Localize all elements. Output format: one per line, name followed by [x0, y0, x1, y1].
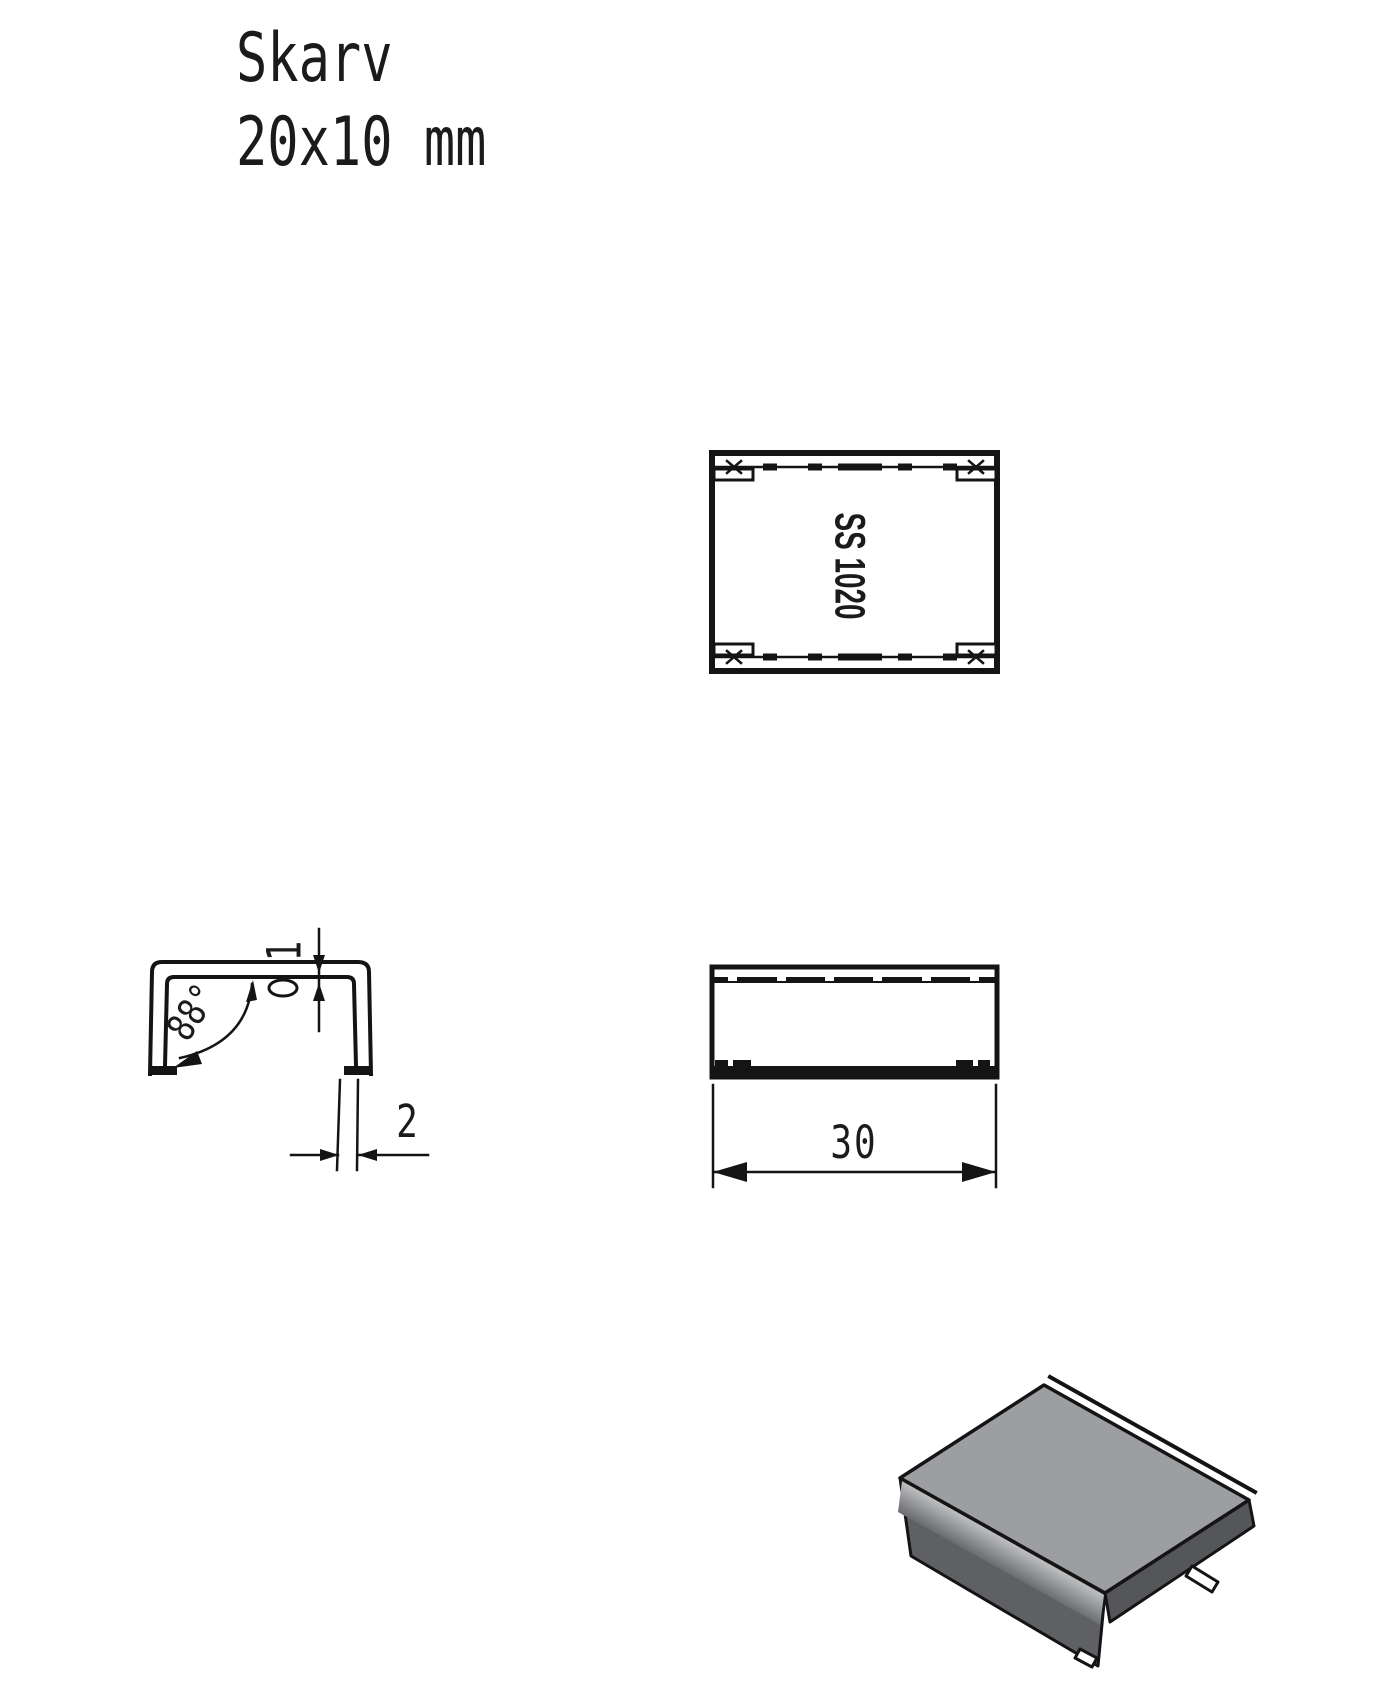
- iso-view: [898, 1377, 1255, 1667]
- leg-dim-arrowheads: [320, 1149, 377, 1161]
- leg-thickness-dimension-text: 2: [387, 1097, 427, 1147]
- length-dimension-text: 30: [814, 1118, 894, 1168]
- dimple-ellipse: [269, 980, 297, 996]
- wall-thickness-dimension-text: 1: [260, 935, 310, 967]
- drawing-size-subtitle: 20x10 mm: [236, 104, 486, 182]
- section-feet: [150, 1066, 371, 1075]
- drawing-sheet: Skarv 20x10 mm SS 1020 88° 1 2 30: [0, 0, 1400, 1687]
- material-stamp-label: SS 1020: [787, 525, 912, 607]
- ink-layer: [150, 453, 1255, 1667]
- drawing-lineart: [0, 0, 1400, 1687]
- front-view-outline: [712, 967, 997, 1077]
- drawing-title: Skarv: [236, 20, 393, 98]
- iso-right-notch: [1186, 1566, 1218, 1592]
- front-seam-line: [714, 977, 995, 983]
